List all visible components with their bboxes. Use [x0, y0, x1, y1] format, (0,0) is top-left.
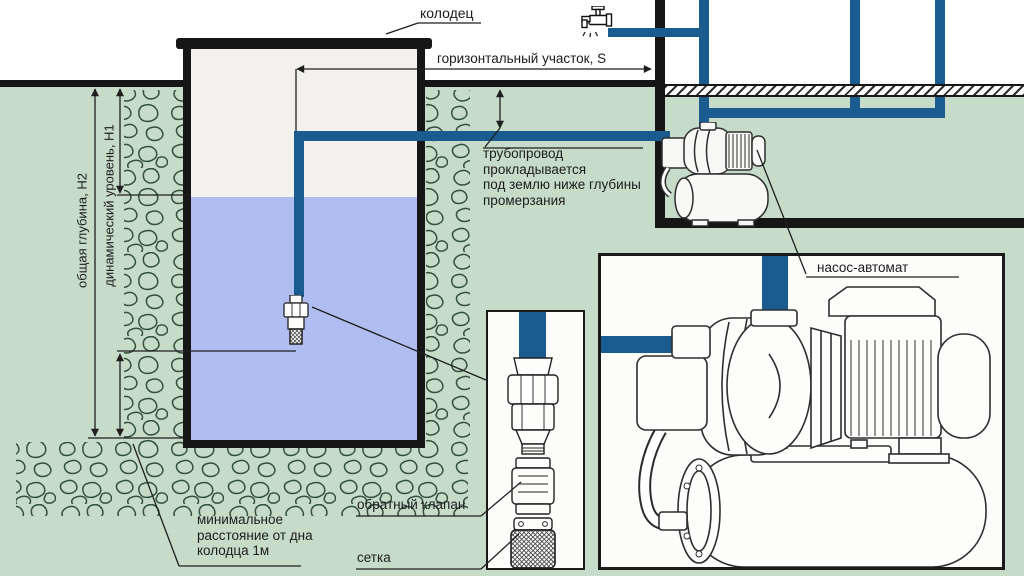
pipeline-note: трубопровод прокладывается под землю ниж…: [483, 146, 641, 208]
well-leader: [386, 23, 481, 34]
pump-station-label: насос-автомат: [817, 260, 908, 276]
frost-depth-arrow: [483, 90, 643, 148]
foot-valve-leader: [312, 307, 486, 380]
min-distance-dimension: [117, 351, 296, 436]
h1-dimension: [117, 89, 190, 195]
strainer-label: сетка: [357, 550, 391, 566]
horizontal-section-label: горизонтальный участок, S: [437, 51, 606, 67]
dynamic-level-label: динамический уровень, H1: [102, 116, 117, 296]
annotations: [0, 0, 1024, 576]
check-valve-label: обратный клапан: [357, 497, 465, 513]
min-distance-note: минимальное расстояние от дна колодца 1м: [197, 512, 313, 559]
well-water-supply-diagram: колодец горизонтальный участок, S трубоп…: [0, 0, 1024, 576]
well-label: колодец: [420, 6, 474, 22]
pump-leader: [757, 150, 959, 277]
total-depth-label: общая глубина, H2: [75, 156, 90, 306]
s-dimension: [296, 69, 651, 131]
